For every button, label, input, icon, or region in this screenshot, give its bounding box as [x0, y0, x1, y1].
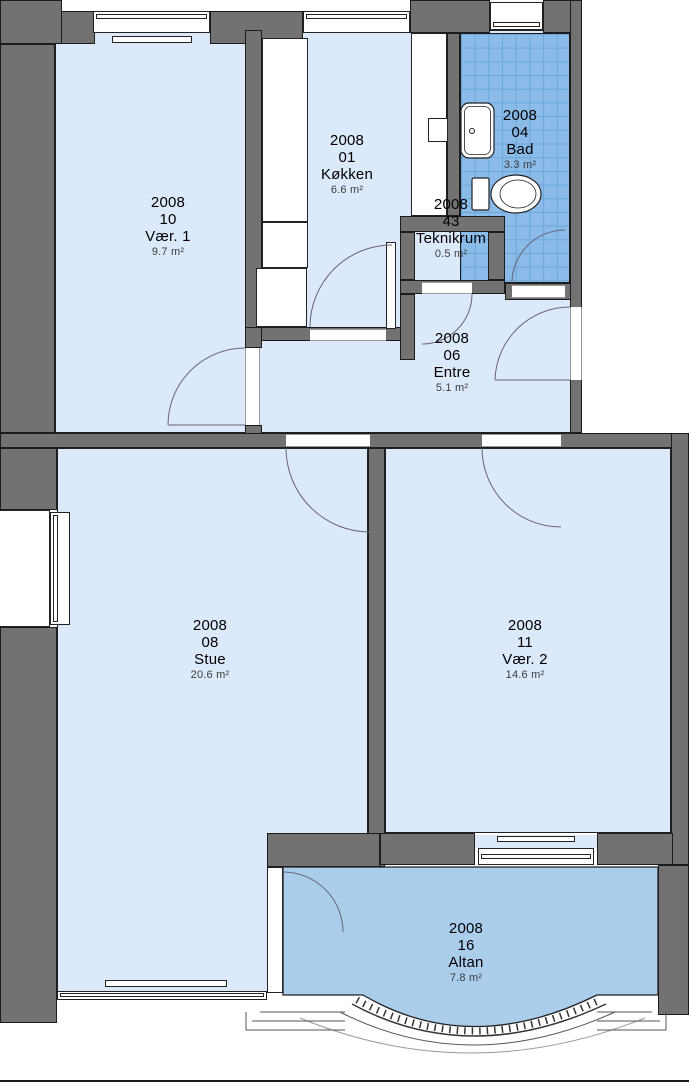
room-id: 43 — [386, 213, 516, 230]
room-id: 01 — [282, 149, 412, 166]
door-arc-vaer2 — [482, 448, 561, 527]
room-name: Entre — [387, 364, 517, 381]
room-number: 2008 — [401, 920, 531, 937]
room-area: 9.7 m² — [103, 245, 233, 259]
room-number: 2008 — [145, 617, 275, 634]
room-label-vaer1: 2008 10 Vær. 1 9.7 m² — [103, 194, 233, 259]
door-arc-koekken — [310, 245, 392, 327]
room-label-entre: 2008 06 Entre 5.1 m² — [387, 330, 517, 395]
room-area: 20.6 m² — [145, 668, 275, 682]
room-name: Stue — [145, 651, 275, 668]
room-label-koekken: 2008 01 Køkken 6.6 m² — [282, 132, 412, 197]
room-number: 2008 — [103, 194, 233, 211]
room-id: 08 — [145, 634, 275, 651]
room-name: Bad — [455, 141, 585, 158]
room-number: 2008 — [387, 330, 517, 347]
room-number: 2008 — [460, 617, 590, 634]
room-name: Altan — [401, 954, 531, 971]
room-name: Teknikrum — [386, 230, 516, 247]
room-label-teknikrum: 2008 43 Teknikrum 0.5 m² — [386, 196, 516, 261]
room-id: 16 — [401, 937, 531, 954]
room-name: Køkken — [282, 166, 412, 183]
room-label-bad: 2008 04 Bad 3.3 m² — [455, 107, 585, 172]
room-label-vaer2: 2008 11 Vær. 2 14.6 m² — [460, 617, 590, 682]
room-number: 2008 — [455, 107, 585, 124]
door-arc-stue — [286, 448, 370, 532]
room-area: 6.6 m² — [282, 183, 412, 197]
room-area: 14.6 m² — [460, 668, 590, 682]
room-label-altan: 2008 16 Altan 7.8 m² — [401, 920, 531, 985]
room-area: 3.3 m² — [455, 158, 585, 172]
room-id: 10 — [103, 211, 233, 228]
room-id: 06 — [387, 347, 517, 364]
room-label-stue: 2008 08 Stue 20.6 m² — [145, 617, 275, 682]
floor-plan: 2008 10 Vær. 1 9.7 m² 2008 01 Køkken 6.6… — [0, 0, 689, 1082]
room-id: 11 — [460, 634, 590, 651]
room-area: 0.5 m² — [386, 247, 516, 261]
room-name: Vær. 1 — [103, 228, 233, 245]
door-arc-bad — [512, 230, 565, 283]
room-id: 04 — [455, 124, 585, 141]
room-number: 2008 — [386, 196, 516, 213]
room-number: 2008 — [282, 132, 412, 149]
room-area: 5.1 m² — [387, 381, 517, 395]
room-area: 7.8 m² — [401, 971, 531, 985]
balcony-steps-left — [246, 1012, 345, 1030]
balcony-steps-right — [597, 1012, 666, 1030]
door-arc-vaer1 — [168, 348, 245, 425]
room-name: Vær. 2 — [460, 651, 590, 668]
